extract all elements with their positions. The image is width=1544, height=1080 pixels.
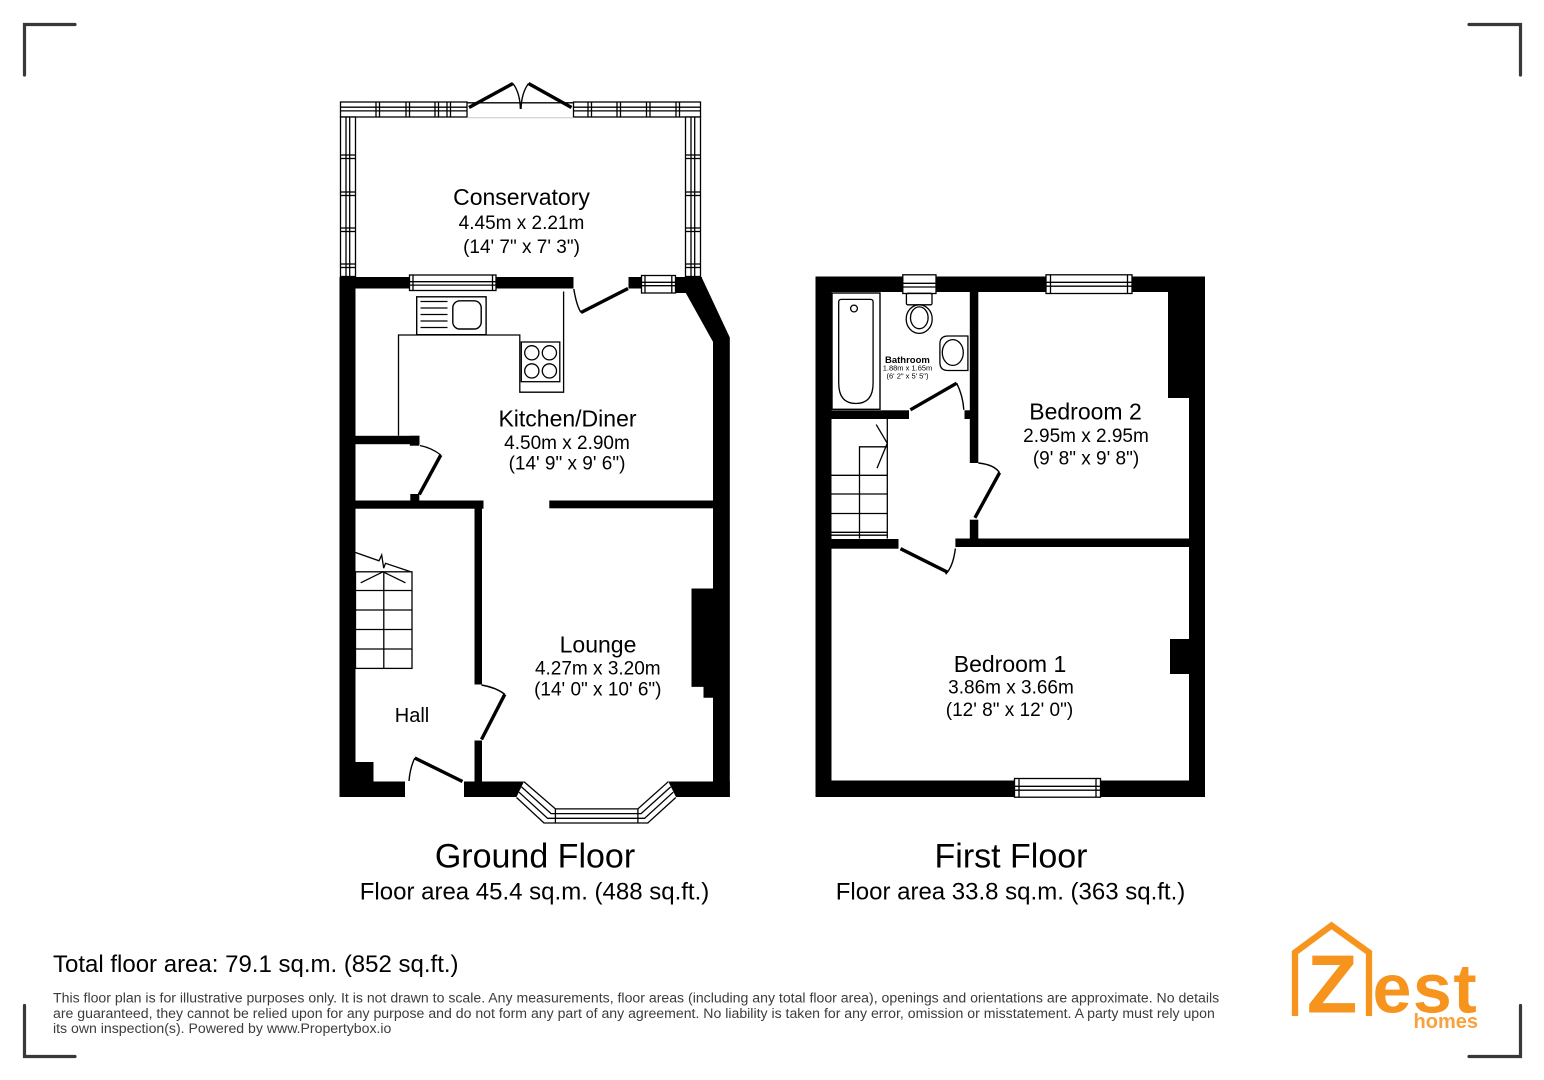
svg-text:homes: homes xyxy=(1414,1011,1478,1033)
svg-text:Z: Z xyxy=(1307,938,1358,1031)
svg-text:4.27m x 3.20m: 4.27m x 3.20m xyxy=(535,659,661,680)
svg-text:(14' 0" x 10' 6"): (14' 0" x 10' 6") xyxy=(534,680,661,701)
svg-text:its own inspection(s). Powered: its own inspection(s). Powered by www.Pr… xyxy=(53,1020,392,1036)
svg-text:Total floor area: 79.1 sq.m. (: Total floor area: 79.1 sq.m. (852 sq.ft.… xyxy=(53,951,459,978)
svg-text:Conservatory: Conservatory xyxy=(453,184,590,210)
svg-text:Hall: Hall xyxy=(395,705,429,727)
svg-text:Lounge: Lounge xyxy=(560,632,637,658)
svg-text:This floor plan is for illustr: This floor plan is for illustrative purp… xyxy=(53,990,1219,1006)
svg-text:(6' 2" x 5' 5"): (6' 2" x 5' 5") xyxy=(887,372,929,381)
svg-text:(9' 8" x 9' 8"): (9' 8" x 9' 8") xyxy=(1033,449,1139,470)
svg-text:are guaranteed, they cannot be: are guaranteed, they cannot be relied up… xyxy=(53,1005,1215,1021)
svg-text:Kitchen/Diner: Kitchen/Diner xyxy=(498,406,636,432)
svg-text:(14' 7" x 7' 3"): (14' 7" x 7' 3") xyxy=(463,237,580,258)
svg-text:(12' 8" x 12' 0"): (12' 8" x 12' 0") xyxy=(946,700,1073,721)
svg-text:2.95m x 2.95m: 2.95m x 2.95m xyxy=(1023,426,1149,447)
svg-text:4.50m x 2.90m: 4.50m x 2.90m xyxy=(504,433,630,454)
svg-text:First Floor: First Floor xyxy=(935,838,1088,876)
svg-text:Bedroom 1: Bedroom 1 xyxy=(954,651,1067,677)
svg-text:Bedroom 2: Bedroom 2 xyxy=(1029,399,1142,425)
svg-text:3.86m x 3.66m: 3.86m x 3.66m xyxy=(948,678,1074,699)
svg-text:4.45m x 2.21m: 4.45m x 2.21m xyxy=(459,213,585,234)
svg-text:(14' 9" x 9' 6"): (14' 9" x 9' 6") xyxy=(509,454,626,475)
svg-text:Floor area 45.4 sq.m. (488 sq.: Floor area 45.4 sq.m. (488 sq.ft.) xyxy=(360,879,710,906)
svg-text:Floor area 33.8 sq.m. (363 sq.: Floor area 33.8 sq.m. (363 sq.ft.) xyxy=(836,879,1186,906)
svg-text:Ground Floor: Ground Floor xyxy=(435,838,635,876)
